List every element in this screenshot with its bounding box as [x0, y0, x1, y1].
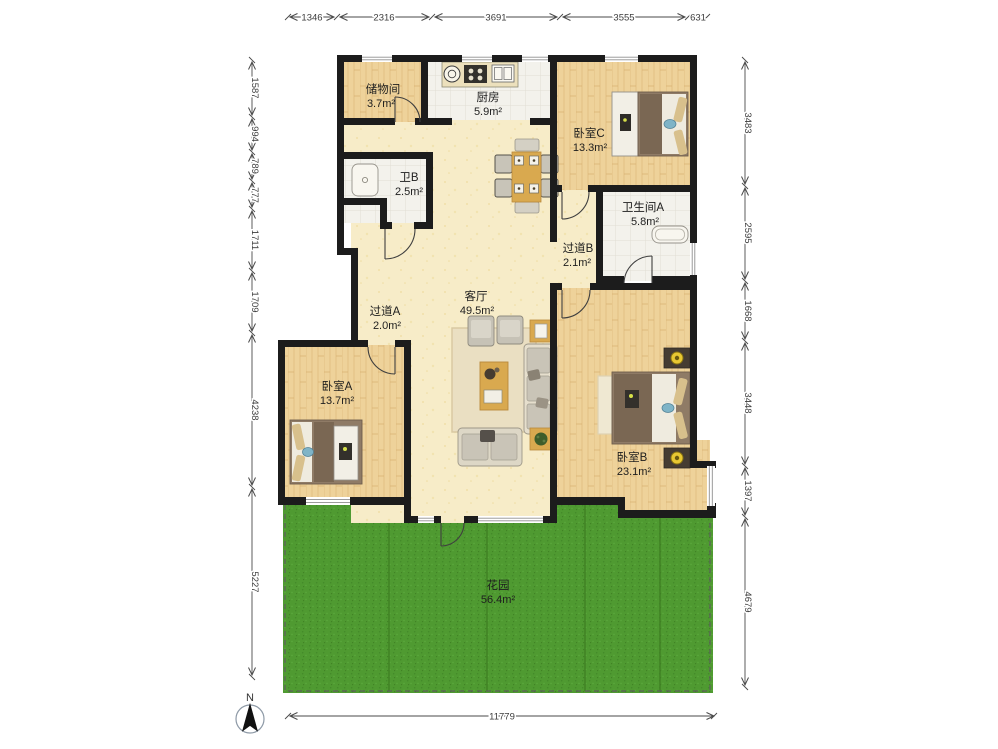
room-area-storage: 3.7m² [367, 98, 395, 110]
dim-right-0: 3483 [742, 112, 753, 133]
dim-top-1: 2316 [373, 13, 394, 24]
room-label-bedroom-c: 卧室C [573, 126, 604, 140]
dimension-chain-top: 1346 2316 3691 3555 631 [285, 13, 710, 24]
dim-right-4: 1397 [742, 480, 753, 501]
room-label-bedroom-b: 卧室B [617, 450, 648, 464]
window-icon [418, 516, 434, 523]
dim-top-0: 1346 [301, 13, 322, 24]
dim-left-2: 789 [249, 158, 260, 174]
room-area-kitchen: 5.9m² [474, 106, 502, 118]
room-area-corridor-a: 2.0m² [373, 320, 401, 332]
dim-left-0: 1587 [249, 77, 260, 98]
dim-top-3: 3555 [613, 13, 634, 24]
room-area-corridor-b: 2.1m² [563, 257, 591, 269]
room-area-garden: 56.4m² [481, 594, 516, 606]
dim-left-3: 777 [249, 187, 260, 203]
dimension-chain-bottom: 11779 [285, 712, 717, 723]
dimension-chain-right: 3483 2595 1668 3448 1397 4679 [742, 57, 753, 690]
window-icon [690, 243, 697, 275]
floor-plan-page: 储物间 3.7m² 厨房 5.9m² 卧室C 13.3m² 卫B 2.5m² 卫… [0, 0, 998, 749]
floor-plan-canvas: 储物间 3.7m² 厨房 5.9m² 卧室C 13.3m² 卫B 2.5m² 卫… [0, 0, 998, 749]
window-icon [605, 55, 638, 62]
dim-left-4: 1711 [249, 230, 260, 250]
plant-icon [535, 433, 548, 446]
dim-top-2: 3691 [485, 13, 506, 24]
dim-right-3: 3448 [742, 392, 753, 413]
room-area-living: 49.5m² [460, 305, 495, 317]
dim-right-5: 4679 [742, 591, 753, 612]
window-icon [462, 55, 492, 62]
window-icon [522, 55, 548, 62]
room-area-bath-a: 5.8m² [631, 216, 659, 228]
room-label-bath-a: 卫生间A [622, 200, 664, 214]
bath-a-tub-icon [652, 226, 688, 243]
dim-left-7: 5227 [249, 571, 260, 592]
north-compass-icon: N [236, 692, 264, 733]
window-icon [306, 497, 350, 505]
corridor-b-floor [553, 190, 598, 288]
bedroom-c-bed-icon [612, 92, 688, 156]
dim-top-4: 631 [690, 13, 706, 24]
room-area-bath-b: 2.5m² [395, 186, 423, 198]
room-label-storage: 储物间 [366, 82, 401, 96]
room-label-corridor-a: 过道A [370, 304, 401, 318]
room-area-bedroom-c: 13.3m² [573, 142, 608, 154]
room-label-corridor-b: 过道B [563, 241, 594, 255]
dim-bottom-0: 11779 [489, 712, 515, 723]
room-label-bedroom-a: 卧室A [322, 379, 353, 393]
window-icon [707, 466, 715, 506]
dimension-chain-left: 1587 994 789 777 1711 1709 4238 5227 [249, 57, 260, 680]
compass-north-label: N [246, 692, 254, 704]
room-area-bedroom-b: 23.1m² [617, 466, 652, 478]
room-label-living: 客厅 [465, 289, 488, 303]
kitchen-counter-icon [442, 62, 518, 87]
dim-right-2: 1668 [742, 300, 753, 321]
room-label-kitchen: 厨房 [477, 91, 500, 104]
bedroom-a-bed-icon [290, 420, 362, 484]
room-area-bedroom-a: 13.7m² [320, 395, 355, 407]
dim-left-1: 994 [249, 126, 260, 142]
bath-b-shower-icon [352, 164, 378, 196]
dim-left-5: 1709 [249, 291, 260, 312]
room-label-garden: 花园 [487, 579, 510, 592]
sofa-set-icon [452, 316, 557, 466]
dim-right-1: 2595 [742, 222, 753, 243]
dim-left-6: 4238 [249, 399, 260, 420]
window-icon [362, 55, 392, 62]
room-label-bath-b: 卫B [399, 172, 418, 184]
window-icon [478, 516, 543, 523]
